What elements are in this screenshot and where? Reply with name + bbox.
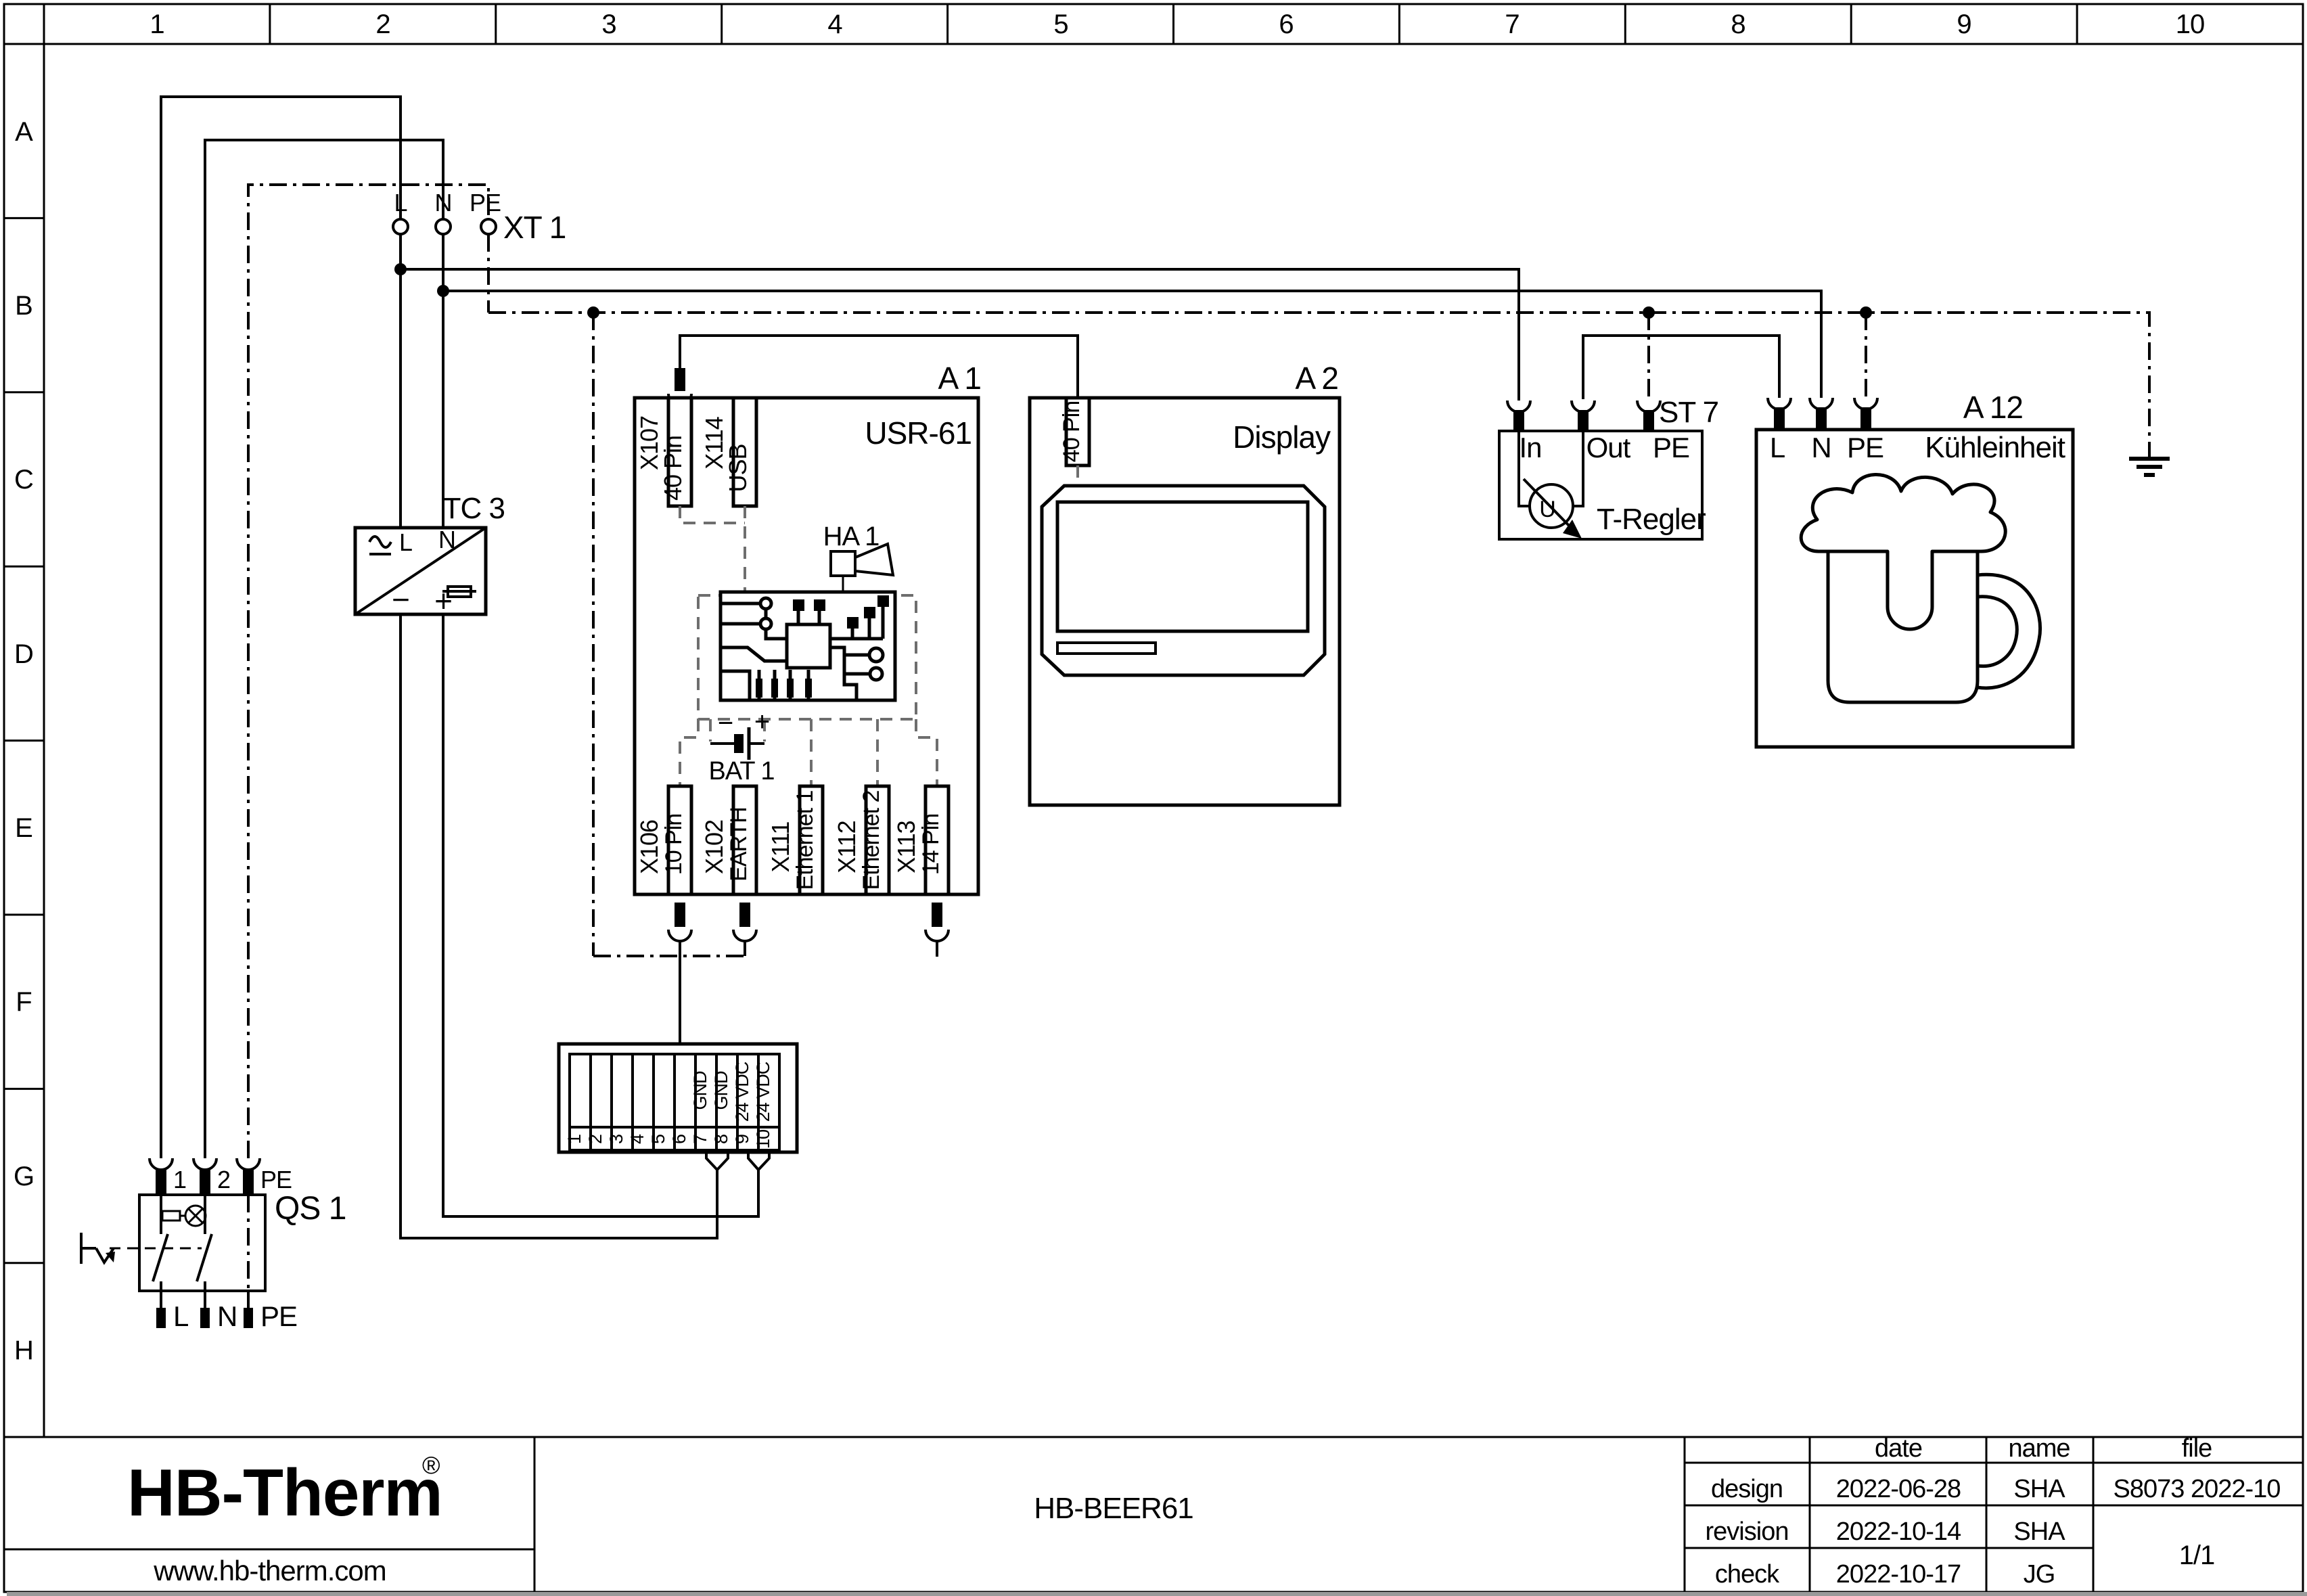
a2-title: Display	[1233, 419, 1331, 455]
sheet-frame: 1 2 3 4 5 6 7 8 9 10 A B C D E F G H	[4, 4, 2307, 1594]
terminal-number: 7	[690, 1135, 710, 1144]
display-bezel-icon	[1042, 486, 1325, 675]
a1-x102-id: X102	[700, 820, 728, 874]
wiring	[161, 97, 2170, 1238]
battery-bat1-icon: − +	[710, 707, 769, 760]
cooling-unit-a12: A 12 L N PE Kühleinheit	[1756, 390, 2073, 747]
terminal-cell-labels: GND GND 24 VDC 24 VDC	[690, 1062, 773, 1122]
plug-symbols-st7	[1507, 401, 1660, 431]
power-supply-tc3: L N − + TC 3	[355, 492, 505, 618]
st7-out-label: Out	[1586, 432, 1631, 463]
a12-title: Kühleinheit	[1925, 431, 2065, 464]
terminal-number: 10	[753, 1130, 773, 1149]
a12-l-label: L	[1770, 432, 1785, 463]
a1-title: USR-61	[865, 415, 972, 451]
col-label: 1	[150, 9, 164, 39]
column-grid	[270, 4, 2077, 44]
logo-registered-mark: ®	[422, 1451, 440, 1479]
qs1-t1-label: 1	[173, 1166, 186, 1193]
xt1-l-label: L	[394, 189, 407, 216]
terminal-number: 3	[606, 1135, 626, 1144]
schematic-drawing: 1 2 3 4 5 6 7 8 9 10 A B C D E F G H	[0, 0, 2307, 1596]
a1-x107-desc: 40 Pin	[659, 436, 687, 501]
col-label: 9	[1957, 9, 1971, 39]
file-number: S8073 2022-10	[2114, 1475, 2281, 1503]
col-label: 8	[1731, 9, 1745, 39]
terminal-number: 6	[669, 1135, 689, 1144]
terminal-numbers: 1 2 3 4 5 6 7 8 9 10	[564, 1130, 773, 1149]
a1-x102-desc: EARTH	[726, 807, 752, 882]
st7-in-label: In	[1519, 432, 1541, 463]
row-label: G	[14, 1162, 34, 1191]
table-date-value: 2022-06-28	[1836, 1475, 1961, 1503]
column-labels: 1 2 3 4 5 6 7 8 9 10	[150, 9, 2204, 39]
tc3-minus-label: −	[392, 582, 409, 617]
table-name-value: JG	[2024, 1560, 2055, 1589]
terminal-block: 1 2 3 4 5 6 7 8 9 10 GND GND 24 VDC 24 V…	[559, 1044, 797, 1170]
col-label: 4	[827, 9, 842, 39]
table-name-value: SHA	[2013, 1475, 2065, 1503]
a1-ha1-label: HA 1	[823, 522, 880, 551]
col-label: 10	[2176, 9, 2205, 39]
plug-symbols-qs1-top	[150, 1158, 260, 1195]
table-row-label: design	[1711, 1475, 1783, 1503]
terminal-number: 4	[627, 1134, 647, 1144]
table-row-label: revision	[1706, 1518, 1789, 1546]
xt1-pe-label: PE	[470, 189, 501, 216]
col-label: 3	[601, 9, 616, 39]
qs1-lamp-icon	[162, 1206, 206, 1226]
st7-ref: ST 7	[1659, 396, 1718, 429]
terminal-number: 1	[564, 1135, 585, 1144]
row-grid	[4, 218, 44, 1262]
row-label: F	[16, 987, 31, 1017]
tc3-l-label: L	[399, 528, 412, 556]
bat1-minus: −	[718, 708, 733, 738]
table-name-value: SHA	[2013, 1518, 2065, 1546]
row-label: E	[15, 813, 32, 843]
display-a2: A 2 Display 40 Pin	[1030, 361, 1340, 805]
col-label: 7	[1505, 9, 1519, 39]
terminal-number: 8	[711, 1135, 731, 1144]
a12-n-label: N	[1811, 432, 1831, 463]
website-link[interactable]: www.hb-therm.com	[153, 1555, 386, 1587]
table-date-value: 2022-10-14	[1836, 1518, 1961, 1546]
row-label: H	[14, 1336, 33, 1365]
earth-ground-icon	[2129, 459, 2170, 475]
drawing-title: HB-BEER61	[1034, 1492, 1193, 1525]
table-date-value: 2022-10-17	[1836, 1560, 1961, 1589]
pcb-art	[721, 592, 895, 700]
a1-x112-desc: Ethernet 2	[859, 790, 884, 890]
a1-x114-desc: USB	[724, 444, 752, 492]
t-regler-st7: ST 7 In Out PE U T-Regler	[1499, 396, 1718, 539]
a2-conn-desc: 40 Pin	[1059, 401, 1084, 462]
a12-pe-label: PE	[1847, 432, 1883, 463]
revision-table: date name file design 2022-06-28 SHA rev…	[1706, 1434, 2281, 1589]
terminal-label: 24 VDC	[753, 1062, 773, 1122]
xt1-n-label: N	[435, 189, 452, 216]
title-block: HB-Therm ® www.hb-therm.com HB-BEER61 da…	[4, 1434, 2303, 1592]
row-label: B	[15, 291, 32, 321]
company-logo: HB-Therm ®	[127, 1451, 442, 1530]
xt1-ref: XT 1	[503, 210, 566, 245]
table-header-file: file	[2182, 1434, 2212, 1463]
a1-x106-id: X106	[635, 820, 663, 874]
main-switch-qs1: 1 2 PE L N PE QS 1	[81, 1158, 346, 1332]
terminal-label: 24 VDC	[732, 1062, 752, 1122]
st7-regulator-icon: U	[1524, 479, 1582, 539]
tc3-ref: TC 3	[443, 492, 505, 525]
qs1-ref: QS 1	[275, 1191, 346, 1227]
tc3-n-label: N	[438, 526, 455, 553]
col-label: 6	[1279, 9, 1293, 39]
qs1-bpe-label: PE	[260, 1300, 297, 1332]
controller-a1: A 1 USR-61 X107 40 Pin X114 USB HA 1	[635, 361, 981, 941]
col-label: 5	[1053, 9, 1068, 39]
a1-bat1-label: BAT 1	[708, 757, 774, 785]
terminal-label: GND	[690, 1071, 710, 1110]
schematic-sheet: 1 2 3 4 5 6 7 8 9 10 A B C D E F G H	[0, 0, 2307, 1596]
page-number: 1/1	[2179, 1541, 2215, 1570]
logo-text: HB-Therm	[127, 1455, 442, 1530]
terminal-number: 2	[585, 1135, 606, 1144]
horn-ha1-icon	[831, 544, 893, 595]
plug-symbols-a12	[1768, 398, 1877, 430]
table-row-label: check	[1715, 1560, 1780, 1589]
st7-name: T-Regler	[1597, 503, 1706, 536]
row-label: D	[14, 639, 33, 669]
row-label: C	[14, 465, 33, 495]
a1-x113-id: X113	[892, 821, 920, 873]
terminal-number: 9	[732, 1135, 752, 1144]
table-header-date: date	[1875, 1434, 1922, 1463]
a12-ref: A 12	[1963, 390, 2023, 425]
beer-mug-icon	[1801, 474, 2040, 702]
a1-x106-desc: 10 Pin	[661, 814, 687, 875]
a1-x111-desc: Ethernet 1	[792, 790, 818, 890]
qs1-t2-label: 2	[217, 1166, 230, 1193]
a1-x111-id: X111	[767, 822, 794, 873]
row-label: A	[15, 117, 33, 147]
a1-x113-desc: 14 Pin	[918, 814, 944, 875]
terminal-number: 5	[648, 1135, 668, 1144]
st7-pe-label: PE	[1653, 432, 1689, 463]
a1-ref: A 1	[938, 361, 981, 396]
table-header-name: name	[2008, 1434, 2070, 1463]
a2-ref: A 2	[1295, 361, 1338, 396]
terminal-xt1: L N PE XT 1	[393, 189, 566, 245]
qs1-bl-label: L	[173, 1300, 188, 1332]
plug-symbols-a1-bottom	[668, 903, 949, 941]
col-label: 2	[375, 9, 390, 39]
a1-x112-id: X112	[833, 821, 861, 873]
terminal-label: GND	[711, 1071, 731, 1110]
tc3-plus-label: +	[434, 583, 452, 618]
bat1-plus: +	[754, 707, 769, 737]
qs1-tpe-label: PE	[260, 1166, 292, 1193]
qs1-bn-label: N	[217, 1300, 237, 1332]
